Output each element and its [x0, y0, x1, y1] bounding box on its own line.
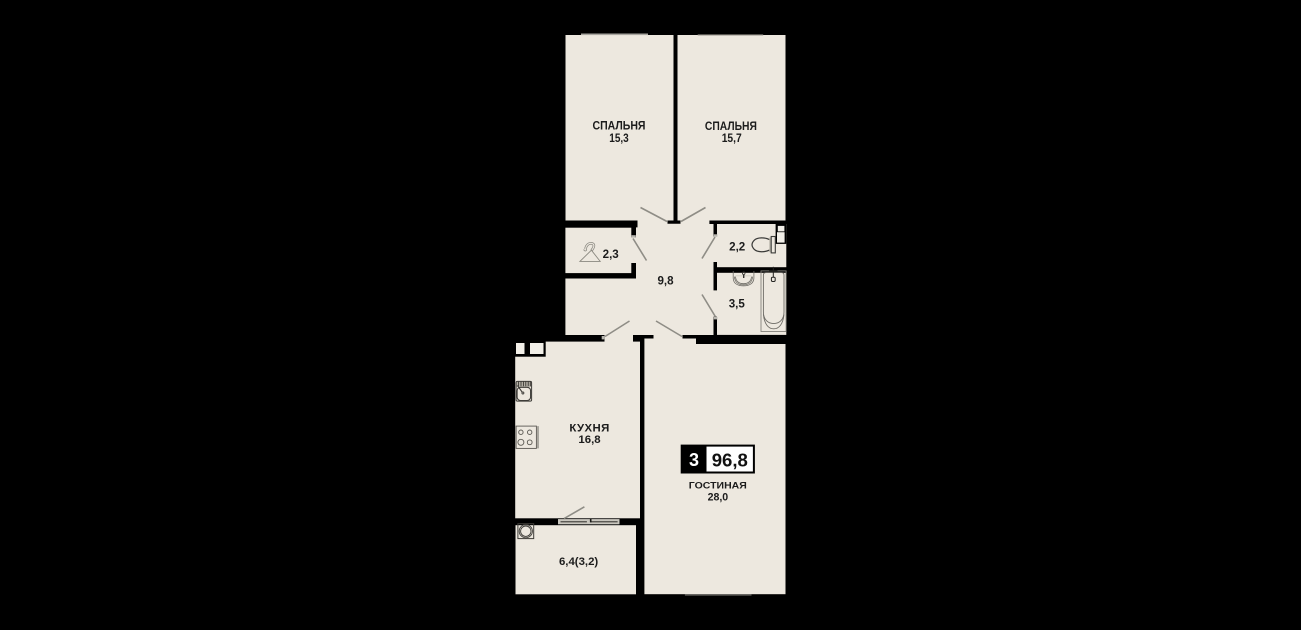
svg-text:9,8: 9,8 — [657, 274, 674, 287]
svg-text:2,2: 2,2 — [729, 240, 745, 253]
svg-text:96,8: 96,8 — [712, 449, 748, 470]
svg-text:15,3: 15,3 — [609, 131, 629, 145]
svg-text:3,5: 3,5 — [729, 298, 746, 311]
svg-text:2,3: 2,3 — [603, 248, 620, 261]
svg-text:15,7: 15,7 — [722, 131, 742, 145]
svg-text:ГОСТИНАЯ: ГОСТИНАЯ — [689, 481, 747, 492]
svg-text:КУХНЯ: КУХНЯ — [569, 422, 609, 434]
svg-text:6,4(3,2): 6,4(3,2) — [559, 556, 598, 568]
svg-text:3: 3 — [689, 450, 699, 470]
svg-text:28,0: 28,0 — [708, 492, 729, 504]
svg-text:16,8: 16,8 — [578, 434, 600, 446]
